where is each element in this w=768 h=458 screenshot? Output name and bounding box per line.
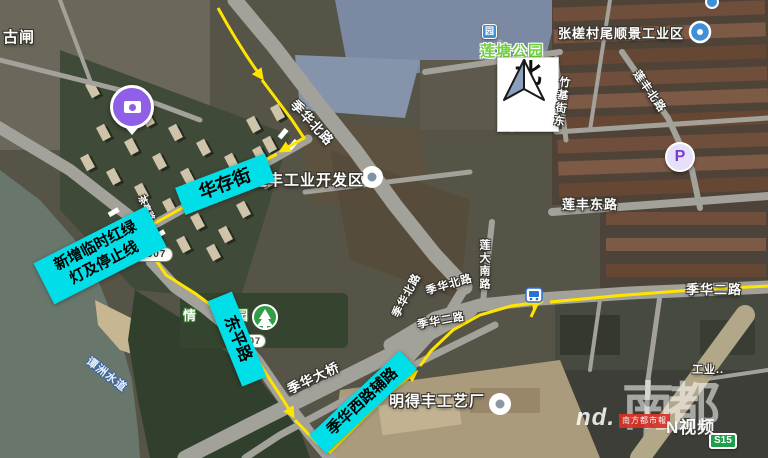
blue-poi-icon-partial[interactable] [706,0,718,8]
place-label-zhangcha: 张槎村尾顺景工业区 [558,23,684,42]
camera-glyph [124,101,141,113]
place-label-gongye: 工业.. [692,361,724,377]
place-label-mingdefeng: 明得丰工艺厂 [389,390,485,411]
park-label-left: 情 [183,305,197,324]
watermark-press-badge: 南方都市報 [619,414,670,428]
road-label-jihua-second-east: 季华二路 [686,279,742,298]
north-arrow-icon [498,58,550,102]
parking-icon[interactable]: P [665,142,695,172]
blue-poi-icon[interactable] [690,22,710,42]
road-label-lianda-south: 莲大南路 [476,239,492,291]
watermark-nd-logo: nd. [576,404,615,432]
tree-park-icon[interactable] [253,305,277,330]
camera-poi-icon[interactable] [110,85,154,129]
park-icon[interactable]: 园 [482,24,497,39]
busstop-poi-icon[interactable] [361,166,383,188]
road-label-lianfeng-east: 莲丰东路 [562,194,618,213]
bus-icon[interactable] [526,288,542,302]
place-label-guzha: 古闸 [3,26,35,47]
factory-poi-icon[interactable] [489,393,511,415]
watermark-nvideo: N视频 [666,413,715,438]
satellite-map-image: 古闸 X507 茶亭路 季华北路 莲丰工业开发区 莲塘公园 园 北 张槎村尾顺景… [0,0,768,458]
